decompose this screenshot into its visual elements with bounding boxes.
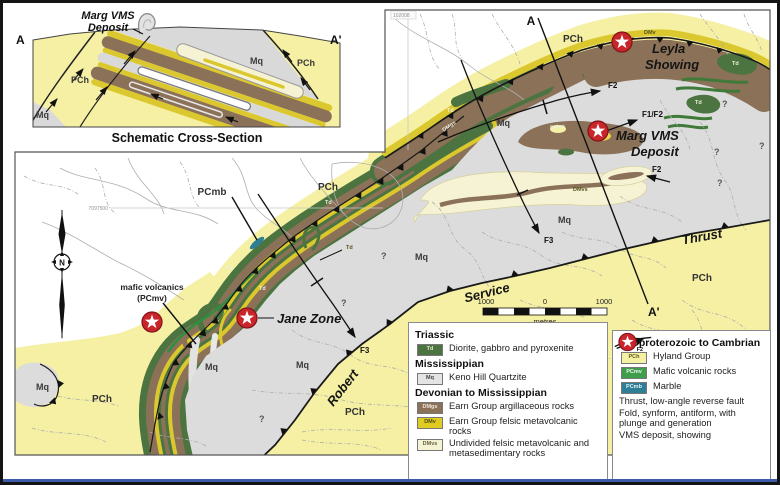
swatch-pcmb: PCmb <box>621 382 647 394</box>
mafic-volcanics-label-2: (PCmv) <box>137 293 167 303</box>
legend-item-mq: Mq Keno Hill Quartzite <box>415 372 601 385</box>
swatch-code: Td <box>427 347 434 353</box>
legend-section-title: Mississippian <box>415 358 601 370</box>
swatch-td: Td <box>417 344 443 356</box>
marg-deposit-label-2: Deposit <box>631 144 679 159</box>
legend-item-label: Undivided felsic metavolcanic and metase… <box>449 438 601 458</box>
legend-item-label: Keno Hill Quartzite <box>449 372 527 382</box>
section-aprime-label: A' <box>648 305 660 319</box>
cs-aprime-label: A' <box>330 33 342 47</box>
vms-star-icon <box>613 331 653 353</box>
unit-label-td-3: Td <box>447 108 454 114</box>
unit-label-mq-3: Mq <box>415 252 428 262</box>
swatch-code: DMv <box>424 420 436 426</box>
legend-symbol-thrust: Thrust, low-angle reverse fault <box>619 396 764 406</box>
cs-deposit-label-1: Marg VMS <box>81 10 135 22</box>
unit-label-td-4: Td <box>325 200 332 206</box>
swatch-dmv: DMv <box>417 417 443 429</box>
swatch-code: DMvs <box>423 442 438 448</box>
legend-item-label: VMS deposit, showing <box>619 430 711 440</box>
swatch-code: PCh <box>629 355 640 361</box>
marg-deposit-label-1: Marg VMS <box>616 128 679 143</box>
corner-ref: 102008 <box>393 13 410 19</box>
legend-item-label: Hyland Group <box>653 351 710 361</box>
legend-section-title: Devonian to Mississippian <box>415 387 601 399</box>
unit-label-td-2: Td <box>695 100 702 106</box>
compass-n-label: N <box>59 259 65 268</box>
section-a-label: A <box>527 14 536 28</box>
f1f2-label: F1/F2 <box>642 110 663 119</box>
legend-right: Neoproterozoic to Cambrian PCh Hyland Gr… <box>612 330 771 480</box>
cs-mq-label-1: Mq <box>36 110 49 120</box>
unit-label-mq-2: Mq <box>558 215 571 225</box>
bottom-accent-line <box>3 479 777 482</box>
f3-label-2: F3 <box>360 346 370 355</box>
vms-star-leyla <box>612 32 632 52</box>
legend-symbol-star: VMS deposit, showing <box>619 430 764 440</box>
legend-item-label: Diorite, gabbro and pyroxenite <box>449 343 574 353</box>
f2-label-2: F2 <box>652 165 662 174</box>
unit-label-dmvs: DMvs <box>573 187 588 193</box>
scale-zero-label: 0 <box>543 297 547 306</box>
legend-item-dmv: DMv Earn Group felsic metavolcanic rocks <box>415 416 601 436</box>
cs-pch-label-2: PCh <box>297 58 315 68</box>
swatch-code: PCmb <box>626 385 642 391</box>
legend-item-label: Thrust, low-angle reverse fault <box>619 396 744 406</box>
unit-label-td-6: Td <box>259 286 266 292</box>
unit-label-pch-4: PCh <box>345 407 365 418</box>
scale-bar <box>483 308 607 315</box>
query-4: ? <box>717 178 723 188</box>
query-5: ? <box>381 251 387 261</box>
swatch-pcmv: PCmv <box>621 367 647 379</box>
legend-item-label: Marble <box>653 381 681 391</box>
query-1: ? <box>722 99 728 109</box>
legend-item-pcmb: PCmb Marble <box>619 381 764 394</box>
legend-item-dmgs: DMgs Earn Group argillaceous rocks <box>415 401 601 414</box>
swatch-code: PCmv <box>626 370 642 376</box>
unit-label-pch-1: PCh <box>563 34 583 45</box>
unit-label-td-1: Td <box>732 61 739 67</box>
jane-zone-label: Jane Zone <box>277 311 341 326</box>
unit-label-dmv: DMv <box>644 30 657 36</box>
query-3: ? <box>714 147 720 157</box>
unit-label-mq-5: Mq <box>205 362 218 372</box>
cs-deposit-label-2: Deposit <box>88 22 130 34</box>
legend-symbol-fold: F2 Fold, synform, antiform, with plunge … <box>619 408 764 428</box>
swatch-mq: Mq <box>417 373 443 385</box>
legend-item-label: Earn Group felsic metavolcanic rocks <box>449 416 601 436</box>
cs-pch-label-1: PCh <box>71 75 89 85</box>
vms-star-jane-west <box>142 312 162 332</box>
vms-star-marg <box>588 121 608 141</box>
scale-right-label: 1000 <box>596 297 613 306</box>
cs-a-label: A <box>16 33 25 47</box>
legend-item-label: Fold, synform, antiform, with plunge and… <box>619 408 764 428</box>
unit-label-pcmb: PCmb <box>198 187 227 198</box>
swatch-code: Mq <box>426 376 434 382</box>
legend-item-td: Td Diorite, gabbro and pyroxenite <box>415 343 601 356</box>
unit-label-pch-2: PCh <box>318 182 338 193</box>
legend-item-pcmv: PCmv Mafic volcanic rocks <box>619 366 764 379</box>
cs-caption: Schematic Cross-Section <box>112 131 263 145</box>
unit-label-td-7: Td <box>346 245 353 251</box>
unit-label-mq-6: Mq <box>296 360 309 370</box>
grid-northing-label: 7097500 <box>89 206 109 212</box>
legend-item-dmvs: DMvs Undivided felsic metavolcanic and m… <box>415 438 601 458</box>
query-7: ? <box>259 414 265 424</box>
unit-label-pch-3: PCh <box>692 273 712 284</box>
unit-label-td-5: Td <box>226 266 233 272</box>
f2-label-1: F2 <box>608 81 618 90</box>
swatch-dmgs: DMgs <box>417 402 443 414</box>
leyla-showing-label-1: Leyla <box>652 41 685 56</box>
unit-label-mq-4: Mq <box>36 382 49 392</box>
unit-label-pch-5: PCh <box>92 394 112 405</box>
legend-item-label: Earn Group argillaceous rocks <box>449 401 574 411</box>
unit-label-mq-1: Mq <box>497 118 510 128</box>
legend-item-label: Mafic volcanic rocks <box>653 366 736 376</box>
f3-label-1: F3 <box>544 236 554 245</box>
geology-figure: 102008 7097500 A A' PCh DMv Leyla Showin… <box>0 0 780 485</box>
query-6: ? <box>341 298 347 308</box>
swatch-code: DMgs <box>423 405 438 411</box>
cs-mq-label-2: Mq <box>250 56 263 66</box>
vms-star-jane-east <box>237 308 257 328</box>
mafic-volcanics-label-1: mafic volcanics <box>120 282 184 292</box>
swatch-pch: PCh <box>621 352 647 364</box>
legend-section-title: Triassic <box>415 329 601 341</box>
cross-section: Marg VMS Deposit A A' PCh Mq Mq PCh Sche… <box>16 10 342 156</box>
legend-left: Triassic Td Diorite, gabbro and pyroxeni… <box>408 322 608 480</box>
swatch-dmvs: DMvs <box>417 439 443 451</box>
scale-left-label: 1000 <box>478 297 495 306</box>
query-2: ? <box>759 141 765 151</box>
leyla-showing-label-2: Showing <box>645 57 699 72</box>
